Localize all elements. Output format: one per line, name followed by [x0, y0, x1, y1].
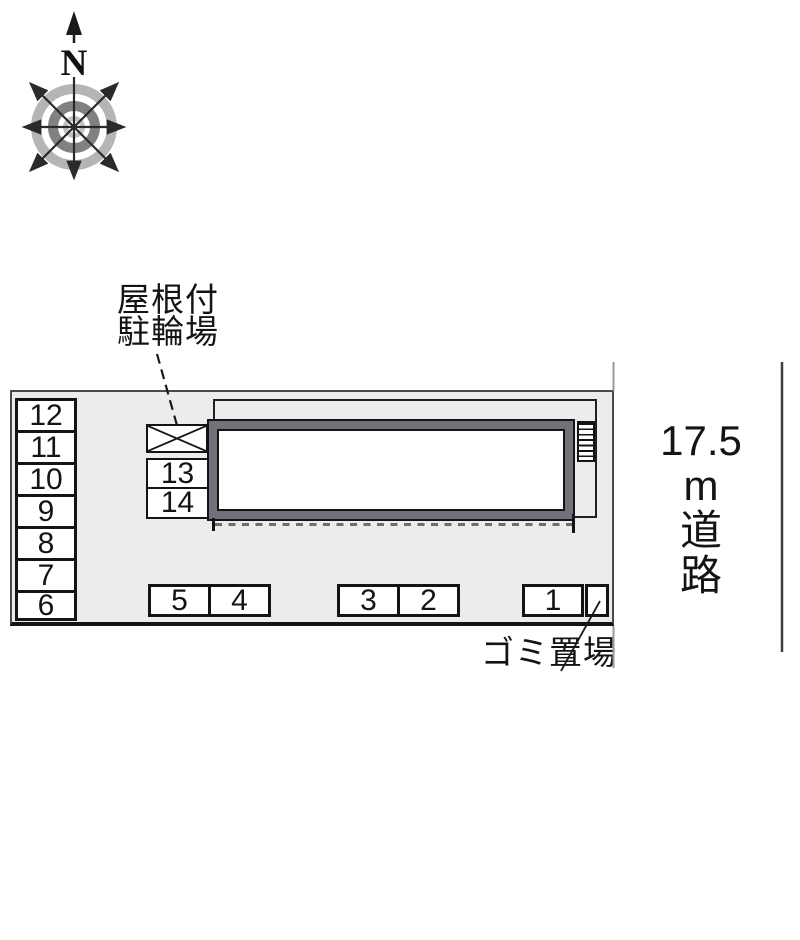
road-width-value: 17.5	[652, 418, 750, 463]
compass-spokes-icon	[26, 77, 122, 176]
parking-space-label: 6	[38, 591, 55, 621]
parking-space-label: 13	[161, 459, 194, 489]
building-drip-line	[215, 523, 573, 526]
site-plan-canvas: N 屋根付 駐輪場 12 11 10 9 8 7 6	[0, 0, 800, 940]
parking-space-label: 12	[29, 401, 62, 431]
parking-group-3-2: 3 2	[337, 584, 460, 617]
building-stairs-icon	[577, 421, 595, 462]
garbage-label: ゴミ置場	[481, 637, 617, 669]
parking-space-7: 7	[15, 558, 77, 593]
parking-space-12: 12	[15, 398, 77, 433]
parking-space-11: 11	[15, 430, 77, 465]
parking-space-10: 10	[15, 462, 77, 497]
drip-line-tick-left	[212, 518, 215, 531]
parking-space-label: 14	[161, 488, 194, 518]
north-arrow-icon	[66, 11, 82, 43]
parking-space-8: 8	[15, 526, 77, 561]
drip-line-tick-right	[572, 514, 575, 533]
parking-space-4: 4	[208, 587, 268, 614]
parking-space-14: 14	[146, 487, 209, 519]
bike-shed-label-line1: 屋根付	[103, 284, 233, 316]
parking-space-6: 6	[15, 590, 77, 621]
parking-space-13: 13	[146, 458, 209, 489]
parking-space-5: 5	[151, 587, 208, 614]
garbage-box	[585, 584, 609, 617]
road-kanji-1: 道	[652, 508, 750, 553]
parking-space-3: 3	[340, 587, 397, 614]
building	[207, 419, 575, 521]
parking-space-label: 10	[29, 465, 62, 495]
building-interior	[217, 429, 565, 511]
parking-group-5-4: 5 4	[148, 584, 271, 617]
parking-space-label: 9	[38, 497, 55, 527]
bike-shed-label-line2: 駐輪場	[103, 316, 233, 348]
road-width-unit: m	[652, 463, 750, 508]
road-kanji-2: 路	[652, 553, 750, 598]
bike-shed-label: 屋根付 駐輪場	[103, 284, 233, 348]
x-mark-icon	[148, 426, 206, 451]
covered-bicycle-parking-box	[146, 424, 208, 453]
parking-space-label: 11	[30, 433, 61, 463]
site-plan: 12 11 10 9 8 7 6 13 14 5 4 3 2 1	[10, 390, 614, 626]
parking-space-9: 9	[15, 494, 77, 529]
parking-space-label: 7	[38, 561, 55, 591]
road-width-label: 17.5 m 道 路	[652, 418, 750, 598]
parking-space-label: 1	[545, 586, 562, 616]
north-label: N	[61, 43, 88, 84]
compass-rose-icon: N	[8, 6, 140, 192]
parking-space-label: 8	[38, 529, 55, 559]
parking-space-1: 1	[522, 584, 584, 617]
parking-space-2: 2	[397, 587, 457, 614]
